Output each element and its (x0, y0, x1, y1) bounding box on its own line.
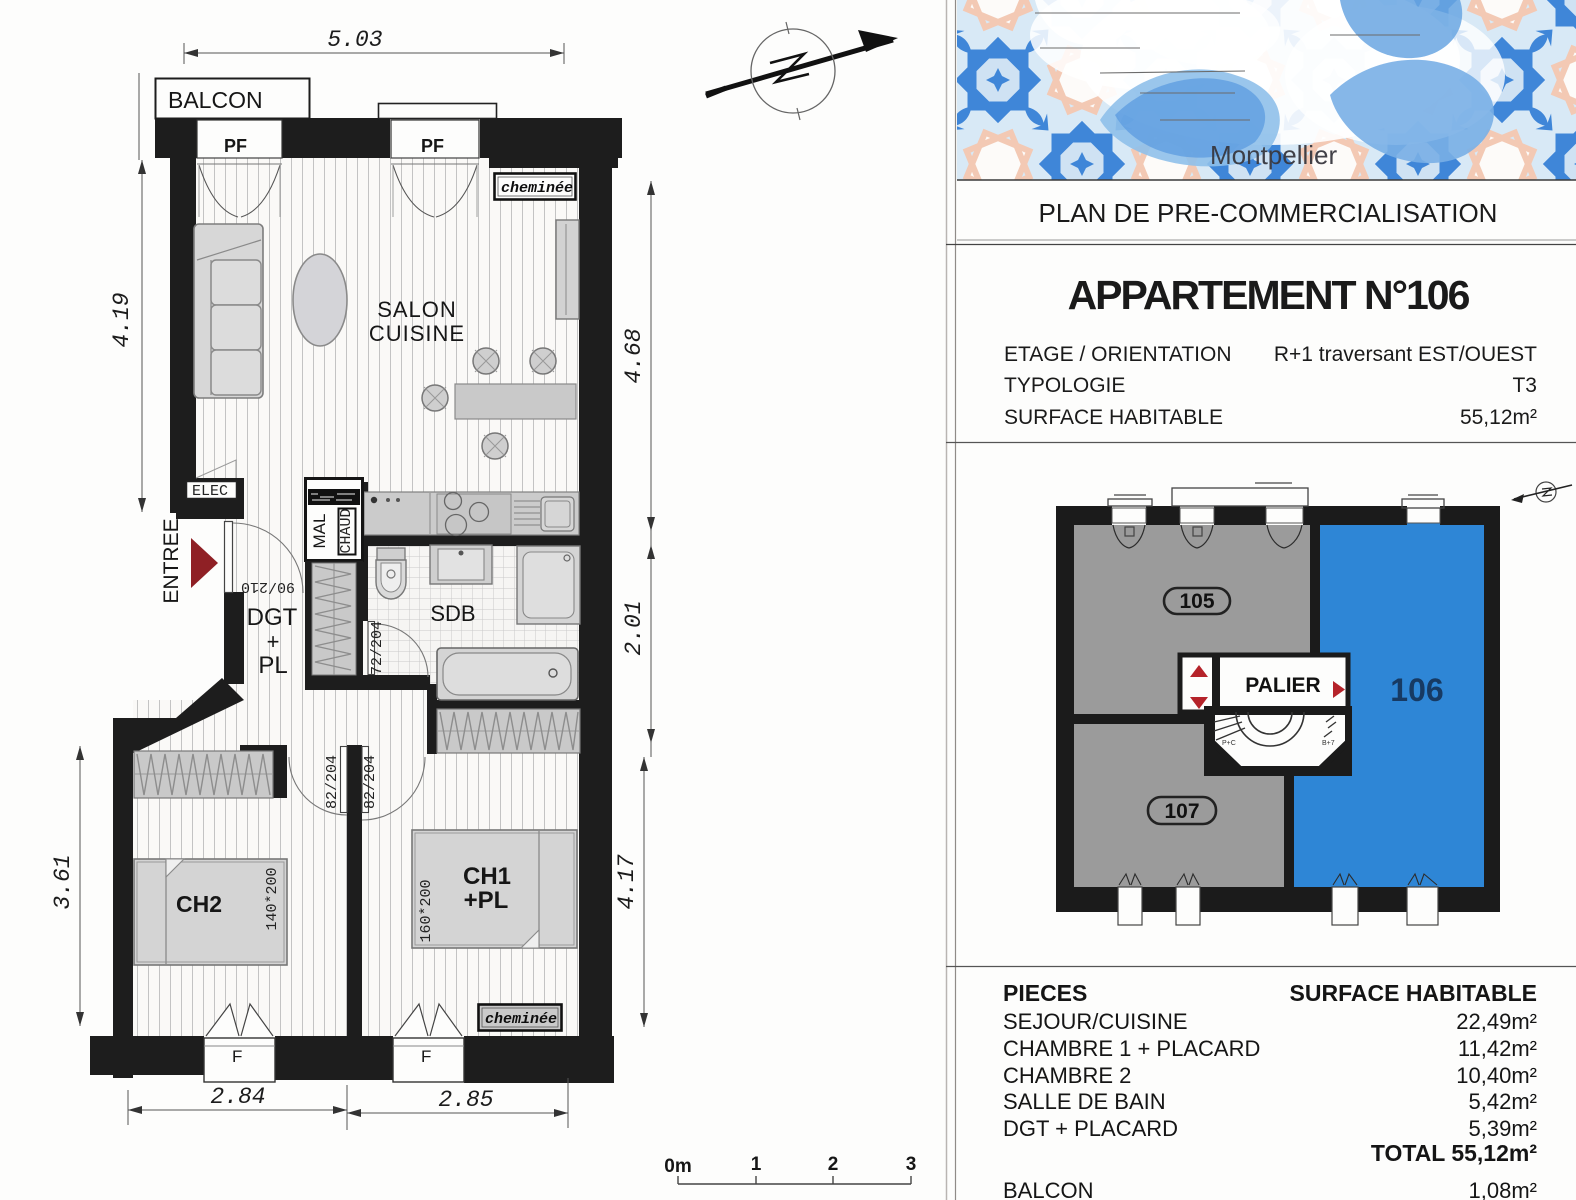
svg-text:1,08m²: 1,08m² (1469, 1178, 1537, 1200)
svg-text:4.19: 4.19 (109, 292, 135, 347)
svg-text:105: 105 (1179, 590, 1214, 613)
svg-text:106: 106 (1390, 672, 1443, 708)
svg-text:2.85: 2.85 (438, 1087, 493, 1113)
svg-text:TOTAL 55,12m²: TOTAL 55,12m² (1371, 1140, 1538, 1166)
svg-text:ENTREE: ENTREE (160, 518, 183, 603)
svg-text:PIECES: PIECES (1003, 980, 1087, 1006)
svg-text:82/204: 82/204 (324, 755, 341, 809)
svg-text:SALLE DE BAIN: SALLE DE BAIN (1003, 1089, 1166, 1114)
svg-text:CUISINE: CUISINE (369, 321, 465, 346)
svg-text:DGT + PLACARD: DGT + PLACARD (1003, 1116, 1178, 1141)
svg-text:SEJOUR/CUISINE: SEJOUR/CUISINE (1003, 1009, 1188, 1034)
svg-text:TYPOLOGIE: TYPOLOGIE (1004, 374, 1125, 397)
svg-text:SURFACE HABITABLE: SURFACE HABITABLE (1004, 406, 1223, 429)
svg-text:cheminée: cheminée (501, 180, 573, 197)
svg-text:P+C: P+C (1222, 740, 1236, 747)
svg-text:SURFACE HABITABLE: SURFACE HABITABLE (1290, 980, 1537, 1006)
svg-text:5,42m²: 5,42m² (1469, 1089, 1537, 1114)
svg-text:+: + (267, 629, 280, 654)
svg-text:5.03: 5.03 (327, 27, 382, 53)
svg-text:F: F (232, 1047, 242, 1066)
svg-text:11,42m²: 11,42m² (1458, 1036, 1537, 1061)
svg-text:CH1: CH1 (463, 863, 511, 890)
svg-text:5,39m²: 5,39m² (1469, 1116, 1537, 1141)
svg-text:PF: PF (224, 136, 247, 156)
svg-text:PL: PL (258, 652, 287, 679)
svg-text:ETAGE / ORIENTATION: ETAGE / ORIENTATION (1004, 343, 1232, 366)
svg-text:1: 1 (751, 1154, 762, 1175)
svg-text:0m: 0m (664, 1156, 691, 1177)
svg-text:PALIER: PALIER (1245, 674, 1320, 697)
svg-text:+PL: +PL (464, 887, 509, 914)
svg-text:CH2: CH2 (176, 891, 222, 917)
svg-text:SALON: SALON (377, 297, 457, 322)
svg-text:2: 2 (828, 1154, 839, 1175)
svg-text:10,40m²: 10,40m² (1456, 1063, 1537, 1088)
svg-text:3.61: 3.61 (50, 854, 76, 909)
svg-text:55,12m²: 55,12m² (1460, 406, 1537, 429)
svg-text:72/204: 72/204 (369, 621, 386, 675)
svg-text:140*200: 140*200 (264, 867, 281, 930)
svg-text:2.84: 2.84 (210, 1084, 265, 1110)
svg-text:ELEC: ELEC (192, 483, 228, 500)
svg-text:CHAUD: CHAUD (338, 508, 355, 553)
svg-text:4.68: 4.68 (621, 328, 647, 383)
svg-text:107: 107 (1164, 800, 1199, 823)
svg-text:22,49m²: 22,49m² (1456, 1009, 1537, 1034)
svg-text:Montpellier: Montpellier (1210, 140, 1338, 170)
svg-text:F: F (421, 1047, 431, 1066)
svg-text:B+7: B+7 (1322, 740, 1335, 747)
svg-text:BALCON: BALCON (1003, 1178, 1093, 1200)
svg-text:PF: PF (421, 136, 444, 156)
svg-text:MAL: MAL (310, 514, 329, 549)
svg-text:3: 3 (906, 1154, 917, 1175)
svg-text:CHAMBRE 2: CHAMBRE 2 (1003, 1063, 1131, 1088)
svg-text:PLAN DE PRE-COMMERCIALISATION: PLAN DE PRE-COMMERCIALISATION (1039, 198, 1498, 228)
svg-text:DGT: DGT (247, 604, 298, 631)
svg-text:4.17: 4.17 (614, 854, 640, 909)
svg-text:2.01: 2.01 (621, 600, 647, 655)
svg-text:160*200: 160*200 (418, 879, 435, 942)
svg-text:BALCON: BALCON (168, 87, 263, 113)
svg-text:90/210: 90/210 (241, 578, 295, 595)
svg-text:APPARTEMENT N°106: APPARTEMENT N°106 (1068, 272, 1470, 318)
svg-text:T3: T3 (1512, 374, 1537, 397)
svg-text:R+1 traversant EST/OUEST: R+1 traversant EST/OUEST (1274, 343, 1537, 366)
svg-text:CHAMBRE 1 + PLACARD: CHAMBRE 1 + PLACARD (1003, 1036, 1260, 1061)
svg-text:cheminée: cheminée (485, 1011, 557, 1028)
svg-text:82/204: 82/204 (362, 755, 379, 809)
svg-text:SDB: SDB (430, 601, 475, 626)
